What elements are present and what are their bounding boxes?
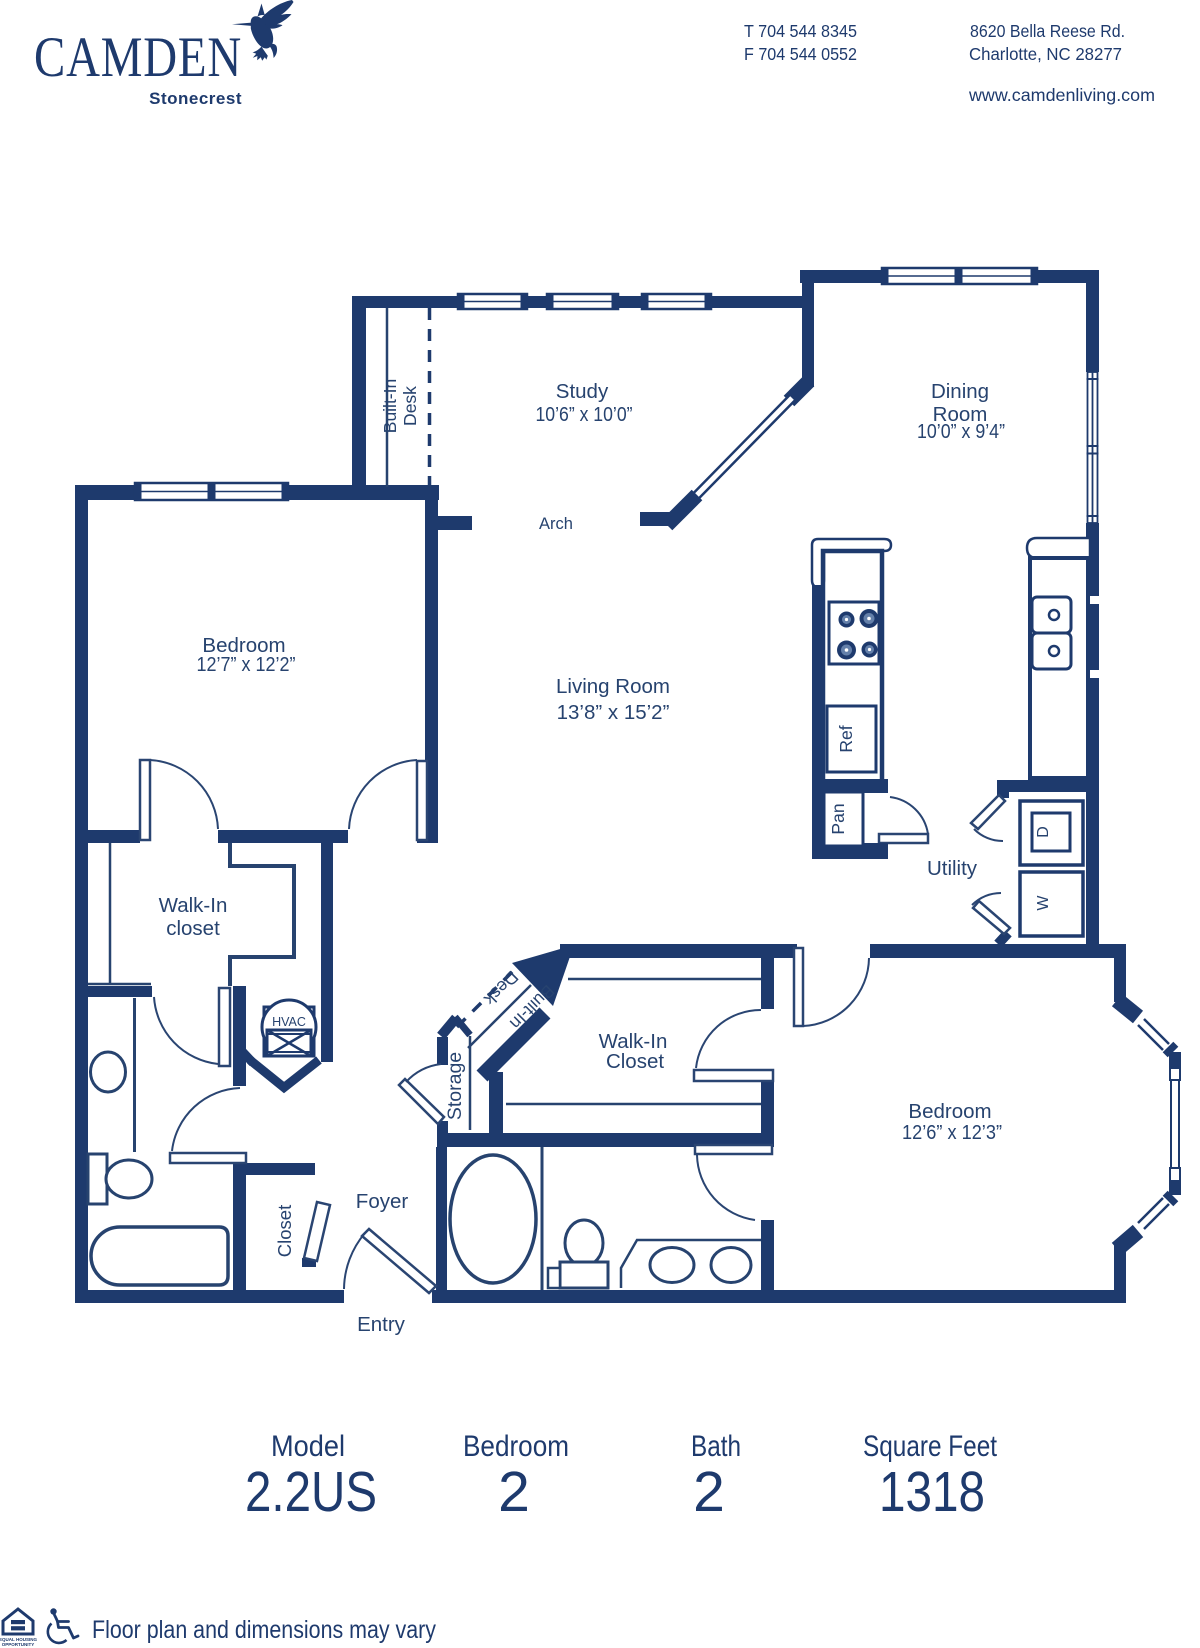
svg-text:12’6” x 12’3”: 12’6” x 12’3” [902, 1121, 1002, 1144]
svg-text:F 704 544 0552: F 704 544 0552 [744, 44, 857, 64]
svg-text:Bath: Bath [691, 1430, 741, 1463]
svg-text:www.camdenliving.com: www.camdenliving.com [968, 85, 1155, 105]
svg-text:2: 2 [498, 1460, 530, 1524]
svg-text:10’0” x 9’4”: 10’0” x 9’4” [917, 421, 1005, 443]
svg-text:Floor plan and dimensions may: Floor plan and dimensions may vary [92, 1616, 436, 1644]
svg-text:Entry: Entry [357, 1313, 406, 1336]
svg-text:Desk: Desk [480, 967, 523, 1010]
svg-text:closet: closet [166, 917, 220, 940]
svg-text:Square Feet: Square Feet [863, 1430, 998, 1463]
svg-text:10’6” x 10’0”: 10’6” x 10’0” [536, 403, 633, 426]
svg-text:Living Room: Living Room [556, 675, 670, 698]
svg-text:Storage: Storage [444, 1052, 466, 1120]
svg-text:13’8” x 15’2”: 13’8” x 15’2” [557, 701, 670, 724]
svg-text:CAMDEN: CAMDEN [34, 26, 242, 89]
svg-text:D: D [1035, 826, 1052, 838]
svg-text:Utility: Utility [927, 857, 978, 880]
svg-text:Built-In: Built-In [380, 379, 400, 433]
svg-text:Desk: Desk [400, 386, 420, 426]
svg-text:Ref: Ref [836, 725, 856, 752]
svg-text:Arch: Arch [539, 515, 573, 533]
svg-text:8620 Bella Reese Rd.: 8620 Bella Reese Rd. [970, 21, 1125, 41]
svg-text:HVAC: HVAC [272, 1015, 306, 1029]
svg-text:Stonecrest: Stonecrest [149, 89, 242, 108]
svg-text:Model: Model [271, 1430, 345, 1463]
svg-text:Foyer: Foyer [356, 1190, 409, 1213]
svg-text:2.2US: 2.2US [245, 1460, 377, 1524]
svg-text:Bedroom: Bedroom [908, 1100, 991, 1123]
svg-text:W: W [1035, 895, 1052, 911]
svg-text:Study: Study [556, 380, 609, 403]
svg-text:Closet: Closet [606, 1050, 664, 1073]
svg-text:T 704 544 8345: T 704 544 8345 [744, 21, 857, 41]
svg-text:Charlotte, NC 28277: Charlotte, NC 28277 [969, 44, 1122, 64]
svg-text:2: 2 [693, 1460, 725, 1524]
svg-text:1318: 1318 [879, 1460, 985, 1524]
svg-text:12’7” x 12’2”: 12’7” x 12’2” [197, 653, 296, 676]
svg-text:Walk-In: Walk-In [159, 894, 228, 917]
svg-text:OPPORTUNITY: OPPORTUNITY [2, 1642, 35, 1647]
svg-text:Bedroom: Bedroom [463, 1430, 569, 1463]
svg-text:Pan: Pan [828, 803, 848, 834]
svg-text:Dining: Dining [931, 380, 989, 403]
svg-text:Closet: Closet [274, 1205, 295, 1257]
